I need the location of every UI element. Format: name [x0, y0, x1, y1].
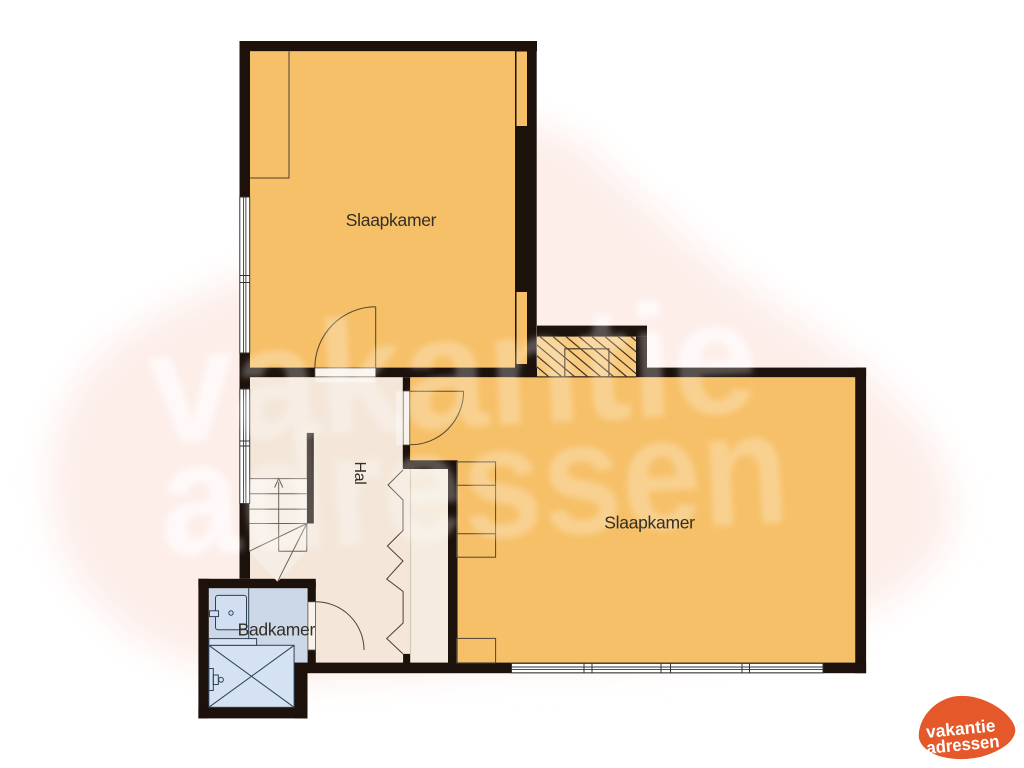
svg-text:Slaapkamer: Slaapkamer: [604, 513, 695, 533]
svg-text:adressen: adressen: [155, 379, 792, 590]
svg-text:Hal: Hal: [351, 461, 368, 484]
svg-text:Slaapkamer: Slaapkamer: [346, 210, 437, 230]
svg-text:Badkamer: Badkamer: [238, 620, 316, 640]
